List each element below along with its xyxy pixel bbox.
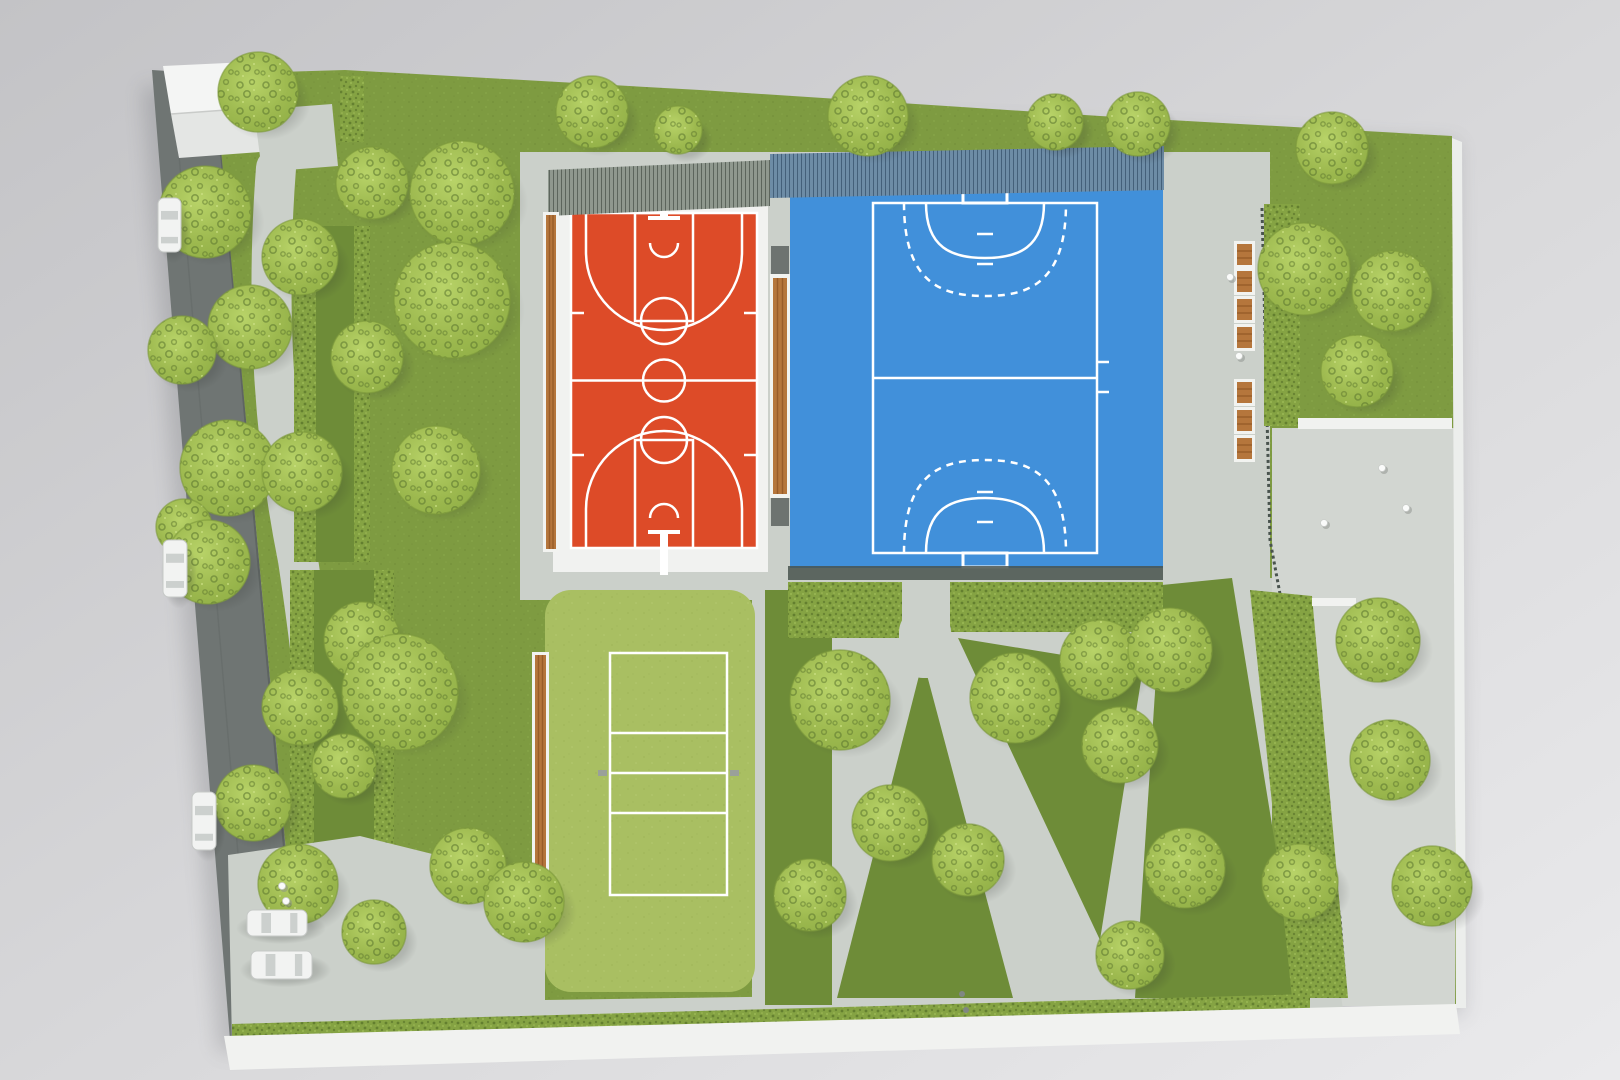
- bench: [1234, 435, 1255, 462]
- car-rear-window: [295, 954, 302, 976]
- car-windshield: [161, 211, 178, 220]
- bench: [1234, 241, 1255, 268]
- bench-between-courts: [770, 246, 790, 526]
- figure: [1227, 274, 1234, 281]
- hedge-gap-path: [899, 608, 951, 678]
- net-post: [598, 770, 607, 776]
- plaza-curb-north: [1298, 418, 1452, 429]
- bench-wood: [1237, 382, 1252, 403]
- bench: [1234, 407, 1255, 434]
- net-post: [730, 770, 739, 776]
- bench: [1234, 268, 1255, 295]
- bench-left-of-volleyball: [532, 652, 549, 890]
- car-windshield: [166, 554, 184, 563]
- fence-north-east: [770, 146, 1164, 198]
- car-windshield: [195, 806, 213, 815]
- car-rear-window: [161, 237, 178, 243]
- figure: [1403, 505, 1410, 512]
- car-body: [247, 910, 307, 936]
- car: [161, 538, 197, 609]
- figure: [1379, 465, 1386, 472]
- figure: [279, 883, 286, 890]
- model-photo: [0, 0, 1620, 1080]
- bin: [963, 1007, 969, 1013]
- car: [156, 197, 191, 264]
- lawn-band: [765, 590, 832, 1005]
- bench-wood: [1237, 244, 1252, 265]
- bench-wood: [1237, 438, 1252, 459]
- plaza-curb-mid: [1312, 598, 1356, 606]
- car-body: [163, 540, 187, 597]
- fence-south: [788, 566, 1163, 580]
- car-body: [158, 198, 181, 252]
- bench: [1234, 324, 1255, 351]
- scene-svg: [0, 0, 1620, 1080]
- bench: [1234, 296, 1255, 323]
- car-rear-window: [290, 913, 297, 933]
- bench-wood: [1237, 299, 1252, 320]
- car-rear-window: [195, 834, 213, 841]
- car: [190, 790, 226, 862]
- hedge-strip: [340, 76, 364, 142]
- car-body: [192, 792, 216, 850]
- figure: [283, 898, 290, 905]
- figure: [1236, 353, 1243, 360]
- car-rear-window: [166, 581, 184, 588]
- bench-wood: [1237, 327, 1252, 348]
- figure: [1321, 520, 1328, 527]
- bench-wood: [1237, 410, 1252, 431]
- car-windshield: [266, 954, 276, 976]
- car-body: [251, 951, 312, 979]
- handball-court: [790, 160, 1163, 568]
- volleyball-court: [545, 590, 755, 992]
- bench-wood: [1237, 271, 1252, 292]
- bench: [1234, 379, 1255, 406]
- car-windshield: [261, 913, 271, 933]
- bin: [959, 991, 965, 997]
- basketball-court: [553, 186, 768, 575]
- bench-left-of-basketball: [543, 212, 559, 552]
